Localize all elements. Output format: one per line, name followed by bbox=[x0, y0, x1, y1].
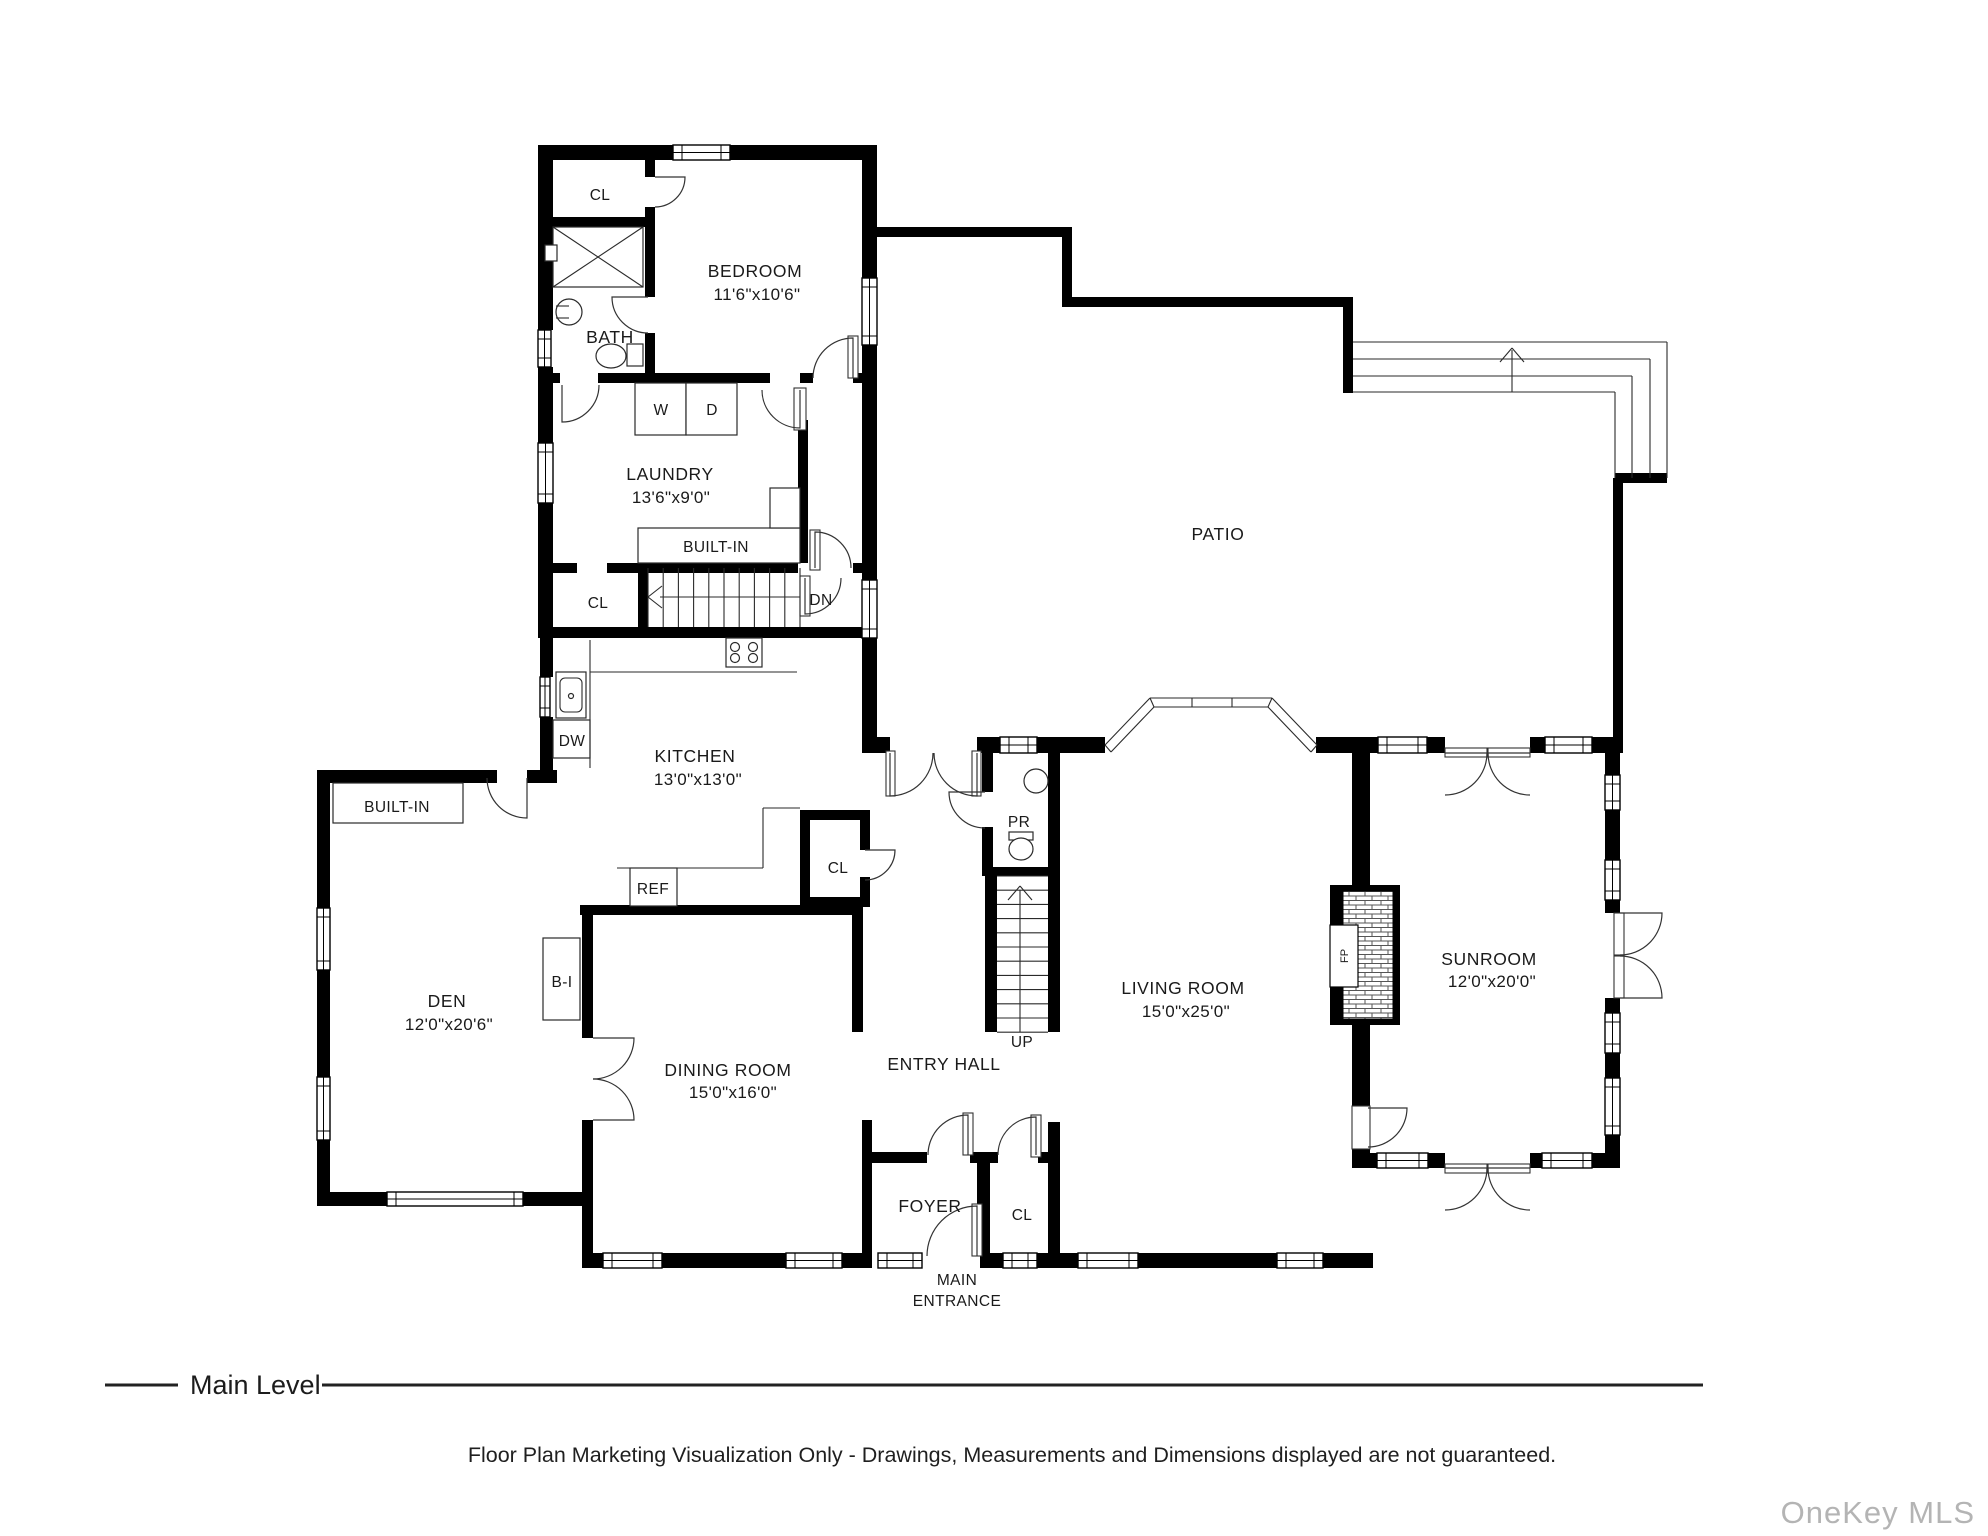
plan-footer: Main Level Floor Plan Marketing Visualiz… bbox=[105, 1370, 1975, 1530]
wall bbox=[1352, 1147, 1370, 1168]
wall bbox=[800, 373, 813, 383]
powder-room-label: PR bbox=[1008, 814, 1030, 831]
wall bbox=[545, 217, 655, 227]
wall bbox=[1352, 737, 1380, 753]
plan-line bbox=[1268, 707, 1311, 752]
wall bbox=[1352, 1025, 1370, 1108]
den-label: DEN bbox=[428, 991, 467, 1011]
fixture-circle bbox=[731, 654, 740, 663]
wall bbox=[538, 563, 577, 573]
watermark-text: OneKey MLS bbox=[1781, 1495, 1975, 1530]
closet-kitchen-label: CL bbox=[828, 860, 849, 877]
wall bbox=[540, 638, 553, 677]
wall bbox=[800, 810, 870, 820]
fixture-circle bbox=[569, 694, 574, 699]
door-arc bbox=[562, 385, 599, 422]
door-arc bbox=[1445, 753, 1487, 795]
plan-geometry bbox=[317, 145, 1667, 1268]
wall bbox=[538, 383, 553, 443]
door-arc bbox=[1368, 1108, 1407, 1147]
closet-stairs-label: CL bbox=[588, 595, 609, 612]
wall bbox=[982, 753, 993, 792]
toilet-bowl bbox=[1009, 838, 1033, 860]
door-arc bbox=[934, 753, 977, 796]
wall bbox=[662, 1253, 786, 1268]
fixture-circle bbox=[556, 299, 582, 325]
wall bbox=[582, 1253, 603, 1268]
wall bbox=[800, 897, 870, 907]
door-arc bbox=[998, 1117, 1036, 1155]
door-arc bbox=[1488, 753, 1530, 795]
built-in-laundry-label: BUILT-IN bbox=[683, 539, 749, 556]
wall bbox=[970, 1152, 998, 1163]
wall bbox=[852, 915, 863, 1032]
wall bbox=[842, 1253, 872, 1268]
fixture bbox=[726, 638, 762, 667]
door-arc bbox=[1445, 1168, 1487, 1210]
plan-line bbox=[1272, 698, 1317, 745]
wall bbox=[317, 783, 330, 908]
door-leaf bbox=[1614, 913, 1624, 955]
door-arc bbox=[813, 338, 853, 378]
kitchen-dims: 13'0"x13'0" bbox=[654, 770, 742, 789]
wall bbox=[645, 160, 655, 177]
fixture-circle bbox=[1024, 769, 1048, 793]
level-title: Main Level bbox=[190, 1370, 321, 1400]
closet-bedroom-label: CL bbox=[590, 187, 611, 204]
wall bbox=[853, 563, 877, 573]
plan-line bbox=[1020, 886, 1032, 900]
washer-label: W bbox=[653, 402, 668, 419]
door-arc bbox=[593, 1038, 634, 1079]
wall bbox=[1605, 998, 1620, 1013]
bedroom-dims: 11'6"x10'6" bbox=[714, 285, 801, 304]
fireplace-label: FP bbox=[1339, 949, 1351, 963]
stairs-up-label: UP bbox=[1011, 1034, 1033, 1051]
refrigerator-label: REF bbox=[637, 881, 669, 898]
wall bbox=[800, 810, 810, 907]
wall bbox=[538, 503, 553, 573]
wall bbox=[862, 1120, 872, 1268]
wall bbox=[1605, 810, 1620, 860]
dining-room-dims: 15'0"x16'0" bbox=[689, 1083, 777, 1102]
toilet-bowl bbox=[596, 344, 626, 368]
door-arc bbox=[928, 1115, 968, 1155]
wall bbox=[1048, 1122, 1060, 1268]
wall bbox=[1323, 1253, 1373, 1268]
wall bbox=[317, 1140, 330, 1192]
wall bbox=[1530, 737, 1545, 753]
entry-hall-label: ENTRY HALL bbox=[887, 1054, 1000, 1074]
wall bbox=[1605, 753, 1620, 775]
plan-line bbox=[1008, 886, 1020, 900]
laundry-dims: 13'6"x9'0" bbox=[632, 488, 710, 507]
disclaimer-text: Floor Plan Marketing Visualization Only … bbox=[468, 1443, 1556, 1467]
wall bbox=[1428, 1153, 1445, 1168]
door-arc bbox=[655, 177, 685, 207]
built-in-small-label: B-I bbox=[551, 974, 572, 991]
wall bbox=[1343, 297, 1353, 393]
wall bbox=[1530, 1153, 1542, 1168]
plan-line bbox=[648, 597, 662, 608]
wall bbox=[317, 970, 330, 1077]
built-in-den-label: BUILT-IN bbox=[364, 799, 430, 816]
wall bbox=[862, 145, 877, 278]
fixture bbox=[770, 488, 800, 528]
wall bbox=[730, 145, 877, 160]
plan-line bbox=[1500, 348, 1512, 362]
wall bbox=[982, 867, 1060, 876]
wall bbox=[1427, 737, 1445, 753]
wall bbox=[1592, 1153, 1620, 1168]
wall bbox=[980, 1253, 1003, 1268]
wall bbox=[860, 810, 870, 850]
plan-line bbox=[1105, 745, 1111, 752]
wall bbox=[523, 1192, 589, 1206]
wall bbox=[538, 145, 553, 330]
door-leaf bbox=[1614, 956, 1624, 998]
wall bbox=[317, 1192, 387, 1206]
wall bbox=[645, 207, 655, 297]
kitchen-label: KITCHEN bbox=[654, 746, 735, 766]
plan-line bbox=[648, 586, 662, 597]
wall bbox=[1613, 478, 1623, 753]
wall bbox=[540, 717, 553, 773]
wall bbox=[527, 770, 557, 783]
wall bbox=[1062, 297, 1353, 307]
door-arc bbox=[1620, 956, 1662, 998]
door-arc bbox=[1620, 913, 1662, 955]
living-room-dims: 15'0"x25'0" bbox=[1142, 1002, 1230, 1021]
door-arc bbox=[487, 778, 527, 818]
wall bbox=[582, 915, 593, 1038]
plan-line bbox=[1111, 707, 1154, 752]
fixture-circle bbox=[749, 654, 758, 663]
patio-label: PATIO bbox=[1192, 524, 1245, 544]
wall bbox=[1316, 737, 1352, 753]
wall bbox=[545, 145, 673, 160]
dishwasher-label: DW bbox=[559, 733, 586, 750]
bath-label: BATH bbox=[586, 327, 634, 347]
wall bbox=[1048, 737, 1060, 1032]
door-leaf bbox=[1352, 1106, 1370, 1149]
plan-line bbox=[1512, 348, 1524, 362]
wall bbox=[1037, 737, 1105, 753]
fixture bbox=[627, 344, 643, 366]
door-arc bbox=[593, 1079, 634, 1120]
wall bbox=[862, 638, 877, 750]
closet-foyer-label: CL bbox=[1012, 1207, 1033, 1224]
wall bbox=[985, 876, 997, 1032]
wall bbox=[538, 373, 560, 383]
wall bbox=[1352, 753, 1370, 885]
dining-room-label: DINING ROOM bbox=[664, 1060, 791, 1080]
wall bbox=[638, 563, 648, 638]
wall bbox=[862, 345, 877, 580]
sunroom-dims: 12'0"x20'0" bbox=[1448, 972, 1536, 991]
plan-line bbox=[1150, 698, 1154, 707]
door-arc bbox=[865, 850, 895, 880]
wall bbox=[598, 373, 655, 383]
door-arc bbox=[1488, 1168, 1530, 1210]
laundry-label: LAUNDRY bbox=[626, 464, 714, 484]
den-dims: 12'0"x20'6" bbox=[405, 1015, 493, 1034]
fixture-circle bbox=[731, 643, 740, 652]
sunroom-label: SUNROOM bbox=[1441, 949, 1537, 969]
wall bbox=[877, 227, 1072, 237]
fixture bbox=[545, 245, 557, 261]
foyer-label: FOYER bbox=[898, 1196, 961, 1216]
main-entrance-label-line2: ENTRANCE bbox=[913, 1293, 1001, 1310]
wall bbox=[1592, 737, 1620, 753]
plan-line bbox=[1105, 698, 1150, 745]
wall bbox=[1138, 1253, 1277, 1268]
wall bbox=[1605, 900, 1620, 913]
dryer-label: D bbox=[706, 402, 718, 419]
floor-plan-page: CL BEDROOM 11'6"x10'6" BATH W D LAUNDRY … bbox=[0, 0, 1988, 1536]
living-room-label: LIVING ROOM bbox=[1121, 978, 1244, 998]
main-entrance-label-line1: MAIN bbox=[937, 1272, 977, 1289]
wall bbox=[317, 770, 497, 783]
door-arc bbox=[949, 792, 985, 828]
floor-plan-drawing: CL BEDROOM 11'6"x10'6" BATH W D LAUNDRY … bbox=[0, 0, 1988, 1536]
wall bbox=[538, 627, 868, 638]
wall bbox=[1062, 227, 1072, 307]
wall bbox=[1605, 1053, 1620, 1078]
wall bbox=[645, 333, 655, 373]
wall bbox=[1037, 1253, 1078, 1268]
stairs-down-label: DN bbox=[809, 592, 832, 609]
bedroom-label: BEDROOM bbox=[708, 261, 803, 281]
wall bbox=[655, 373, 770, 383]
fixture-circle bbox=[749, 643, 758, 652]
door-arc bbox=[890, 753, 933, 796]
plan-line bbox=[1268, 698, 1272, 707]
